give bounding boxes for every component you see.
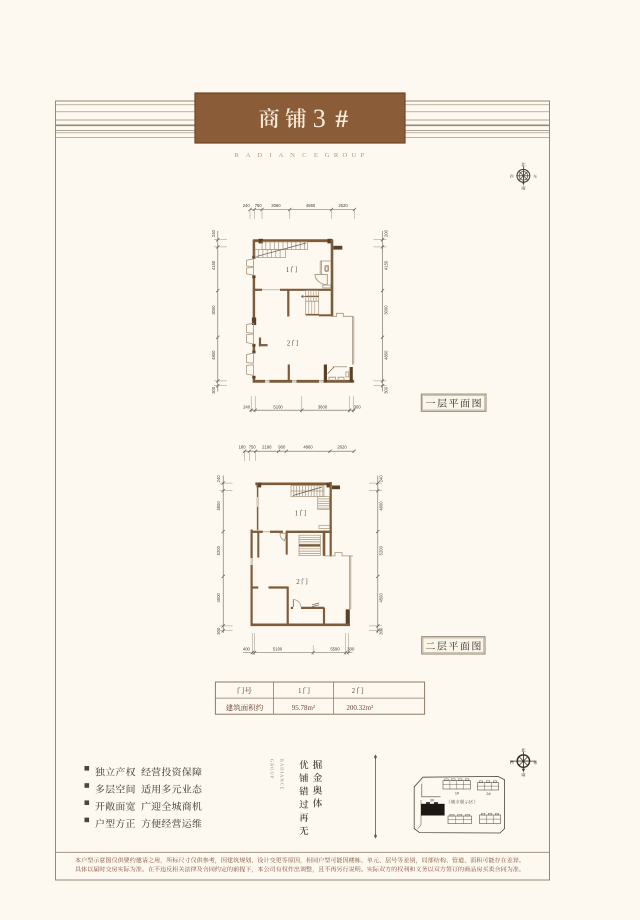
svg-text:2: 2 [352, 687, 356, 695]
svg-text:750: 750 [255, 203, 263, 208]
svg-text:240: 240 [216, 475, 221, 483]
svg-text:5590: 5590 [330, 646, 340, 651]
svg-text:4800: 4800 [216, 501, 221, 511]
svg-text:300: 300 [354, 404, 362, 409]
svg-text:4500: 4500 [379, 592, 384, 602]
svg-text:3000: 3000 [383, 305, 388, 315]
svg-text:240: 240 [211, 229, 216, 237]
svg-text:900: 900 [278, 445, 286, 450]
svg-text:RADIANCE: RADIANCE [280, 759, 285, 790]
svg-text:200: 200 [383, 229, 388, 237]
svg-text:2190: 2190 [262, 445, 272, 450]
svg-text:G R O U P: G R O U P [325, 152, 366, 159]
svg-text:300: 300 [379, 627, 384, 635]
svg-text:1: 1 [298, 687, 302, 695]
svg-text:400: 400 [243, 646, 251, 651]
svg-text:4860: 4860 [306, 203, 316, 208]
svg-text:4800: 4800 [383, 350, 388, 360]
svg-text:300: 300 [383, 386, 388, 394]
svg-text:#: # [335, 104, 348, 133]
svg-text:1: 1 [286, 266, 290, 274]
svg-text:240: 240 [243, 203, 251, 208]
svg-text:GROUP: GROUP [270, 759, 275, 779]
svg-text:4860: 4860 [303, 445, 313, 450]
svg-text:300: 300 [216, 627, 221, 635]
svg-text:180: 180 [239, 445, 247, 450]
svg-text:2: 2 [287, 340, 291, 348]
svg-text:200.32m²: 200.32m² [346, 704, 373, 712]
svg-text:750: 750 [249, 445, 257, 450]
svg-text:4800: 4800 [379, 501, 384, 511]
svg-text:300: 300 [211, 386, 216, 394]
svg-text:4800: 4800 [211, 350, 216, 360]
svg-text:5200: 5200 [379, 545, 384, 555]
svg-text:2620: 2620 [337, 445, 347, 450]
svg-text:3060: 3060 [271, 203, 281, 208]
svg-text:240: 240 [379, 475, 384, 483]
svg-text:5100: 5100 [273, 404, 283, 409]
svg-text:300: 300 [347, 646, 355, 651]
svg-text:3: 3 [313, 104, 326, 133]
svg-text:2520: 2520 [338, 203, 348, 208]
svg-text:3000: 3000 [211, 305, 216, 315]
svg-text:R A D I A N C E: R A D I A N C E [235, 152, 321, 159]
svg-text:5200: 5200 [216, 545, 221, 555]
svg-text:4150: 4150 [211, 260, 216, 270]
svg-text:1: 1 [295, 510, 299, 518]
svg-text:5100: 5100 [273, 646, 283, 651]
svg-text:3600: 3600 [318, 404, 328, 409]
svg-text:240: 240 [243, 404, 251, 409]
svg-text:4500: 4500 [216, 592, 221, 602]
svg-text:95.78m²: 95.78m² [292, 704, 315, 712]
svg-text:4150: 4150 [383, 260, 388, 270]
svg-text:2: 2 [296, 578, 300, 586]
